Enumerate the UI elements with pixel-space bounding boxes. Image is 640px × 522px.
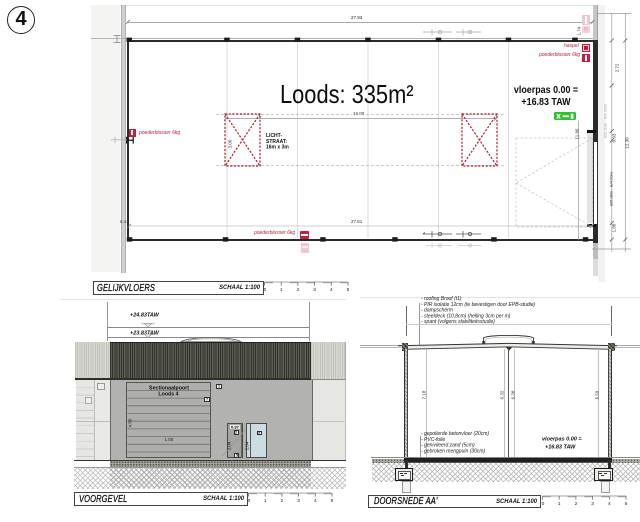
svg-text:1: 1	[558, 501, 561, 507]
svg-text:1: 1	[264, 498, 267, 504]
svg-text:5: 5	[331, 498, 334, 504]
svg-text:5: 5	[347, 287, 350, 293]
svg-text:4: 4	[330, 287, 333, 293]
svg-text:2: 2	[297, 287, 300, 293]
svg-text:5: 5	[625, 501, 628, 507]
svg-text:0: 0	[542, 501, 545, 507]
svg-text:2: 2	[281, 498, 284, 504]
svg-text:0: 0	[248, 498, 251, 504]
svg-text:3: 3	[313, 287, 316, 293]
svg-text:3: 3	[297, 498, 300, 504]
svg-text:2: 2	[575, 501, 578, 507]
svg-text:4: 4	[314, 498, 317, 504]
svg-text:3: 3	[591, 501, 594, 507]
svg-text:4: 4	[608, 501, 611, 507]
svg-text:0: 0	[264, 287, 267, 293]
svg-text:1: 1	[280, 287, 283, 293]
